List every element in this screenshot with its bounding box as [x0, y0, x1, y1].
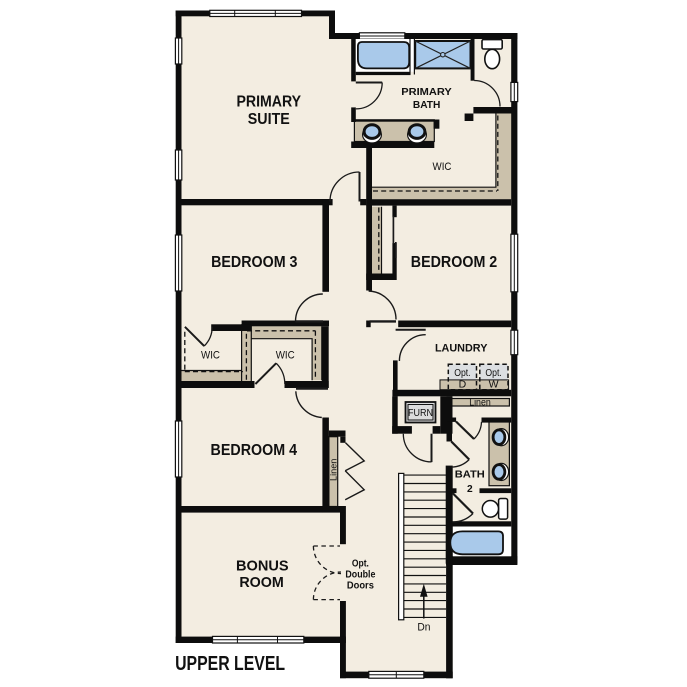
- svg-text:BEDROOM 4: BEDROOM 4: [211, 442, 298, 459]
- svg-text:WIC: WIC: [276, 350, 295, 362]
- svg-text:Opt.: Opt.: [352, 558, 369, 569]
- svg-text:WIC: WIC: [201, 350, 220, 362]
- svg-text:BATH: BATH: [455, 469, 485, 480]
- svg-text:Doors: Doors: [347, 581, 374, 592]
- svg-text:BEDROOM 3: BEDROOM 3: [211, 254, 298, 271]
- svg-text:PRIMARY: PRIMARY: [237, 93, 302, 110]
- svg-text:Linen: Linen: [469, 397, 491, 408]
- svg-text:Linen: Linen: [328, 459, 339, 481]
- svg-text:SUITE: SUITE: [248, 111, 290, 128]
- svg-text:WIC: WIC: [433, 161, 452, 173]
- svg-text:Dn: Dn: [417, 622, 430, 634]
- svg-text:Opt.: Opt.: [454, 367, 470, 379]
- svg-text:BATH: BATH: [413, 99, 441, 111]
- svg-text:2: 2: [467, 484, 473, 495]
- svg-text:UPPER LEVEL: UPPER LEVEL: [175, 653, 285, 675]
- svg-text:W: W: [489, 379, 499, 391]
- svg-text:Double: Double: [345, 570, 375, 581]
- svg-text:PRIMARY: PRIMARY: [401, 86, 452, 98]
- svg-text:BEDROOM 2: BEDROOM 2: [411, 254, 498, 271]
- svg-text:BONUS: BONUS: [236, 558, 289, 575]
- svg-text:ROOM: ROOM: [239, 574, 284, 591]
- svg-text:FURN: FURN: [408, 407, 433, 419]
- svg-text:Opt.: Opt.: [485, 367, 501, 379]
- svg-text:D: D: [459, 379, 467, 391]
- svg-text:LAUNDRY: LAUNDRY: [435, 342, 488, 354]
